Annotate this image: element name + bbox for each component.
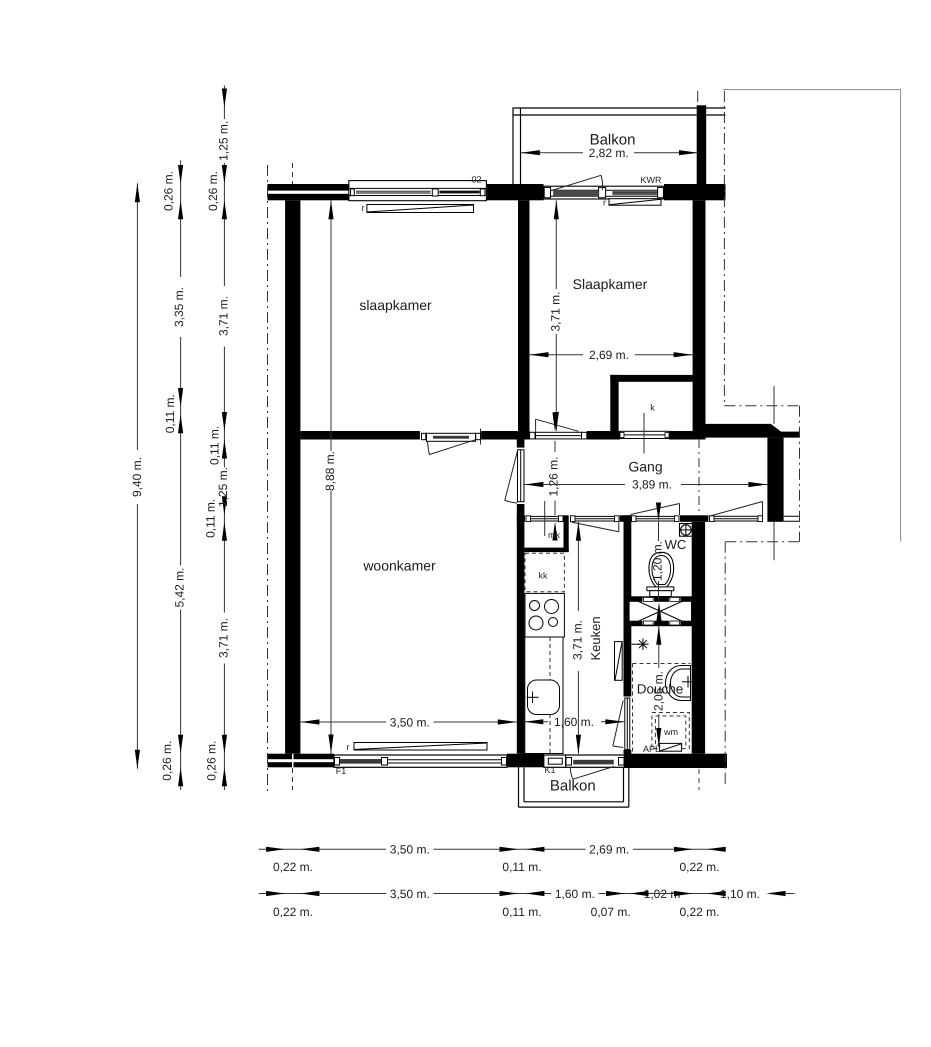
svg-text:8,88 m.: 8,88 m. <box>323 451 337 491</box>
svg-text:k: k <box>650 403 655 413</box>
svg-text:1,25 m.: 1,25 m. <box>216 467 230 507</box>
svg-text:Keuken: Keuken <box>588 616 603 660</box>
svg-text:02: 02 <box>471 175 481 185</box>
svg-text:0,26 m.: 0,26 m. <box>204 741 218 781</box>
svg-text:9,40 m.: 9,40 m. <box>130 457 144 497</box>
svg-text:1,25 m.: 1,25 m. <box>217 121 231 161</box>
svg-text:3,71 m.: 3,71 m. <box>217 618 231 658</box>
svg-text:0,22 m.: 0,22 m. <box>273 905 313 919</box>
svg-text:0,22 m.: 0,22 m. <box>679 860 719 874</box>
svg-text:3,71 m.: 3,71 m. <box>217 296 231 336</box>
svg-text:Douche: Douche <box>637 682 684 697</box>
svg-text:0,11 m.: 0,11 m. <box>163 394 177 433</box>
svg-text:0,22 m.: 0,22 m. <box>273 860 313 874</box>
svg-text:3,71 m.: 3,71 m. <box>571 620 585 660</box>
svg-text:0,26 m.: 0,26 m. <box>160 741 174 781</box>
svg-text:1,20 m.: 1,20 m. <box>650 541 664 581</box>
svg-text:2,69 m.: 2,69 m. <box>589 843 629 857</box>
svg-text:3,89 m.: 3,89 m. <box>632 478 672 492</box>
svg-text:2,69 m.: 2,69 m. <box>589 348 629 362</box>
svg-text:Balkon: Balkon <box>590 132 636 149</box>
svg-text:K1: K1 <box>544 765 555 775</box>
svg-text:3,35 m.: 3,35 m. <box>172 287 186 327</box>
svg-text:0,07 m.: 0,07 m. <box>591 905 631 919</box>
svg-text:0,26 m.: 0,26 m. <box>206 171 220 211</box>
svg-text:0,11 m.: 0,11 m. <box>502 860 541 874</box>
svg-text:WC: WC <box>665 537 687 552</box>
svg-text:3,71 m.: 3,71 m. <box>548 291 562 331</box>
svg-text:1,10 m.: 1,10 m. <box>720 887 760 901</box>
svg-text:APL: APL <box>643 744 660 754</box>
svg-text:0,11 m.: 0,11 m. <box>502 905 541 919</box>
svg-text:3,50 m.: 3,50 m. <box>390 843 430 857</box>
svg-text:0,22 m.: 0,22 m. <box>679 905 719 919</box>
svg-text:F1: F1 <box>336 766 347 776</box>
svg-text:woonkamer: woonkamer <box>362 558 436 574</box>
svg-text:5,42 m.: 5,42 m. <box>173 567 187 607</box>
svg-text:1,60 m.: 1,60 m. <box>555 887 595 901</box>
svg-text:kk: kk <box>539 571 549 581</box>
svg-text:0,11 m.: 0,11 m. <box>207 426 221 465</box>
svg-text:3,50 m.: 3,50 m. <box>390 887 430 901</box>
svg-text:mk: mk <box>548 530 560 540</box>
svg-text:r: r <box>362 203 365 213</box>
svg-text:KWR: KWR <box>641 175 662 185</box>
svg-text:r: r <box>603 198 606 208</box>
svg-text:3,50 m.: 3,50 m. <box>390 715 430 729</box>
svg-text:1,26 m.: 1,26 m. <box>547 456 561 496</box>
svg-text:0,11 m.: 0,11 m. <box>204 499 218 538</box>
svg-text:Slaapkamer: Slaapkamer <box>573 276 648 292</box>
svg-text:Balkon: Balkon <box>550 778 596 795</box>
svg-text:slaapkamer: slaapkamer <box>359 297 432 313</box>
svg-text:0,26 m.: 0,26 m. <box>161 171 175 211</box>
svg-text:r: r <box>347 742 350 752</box>
svg-text:wm: wm <box>663 727 678 737</box>
svg-text:1,60 m.: 1,60 m. <box>554 715 594 729</box>
svg-text:Gang: Gang <box>628 459 662 475</box>
